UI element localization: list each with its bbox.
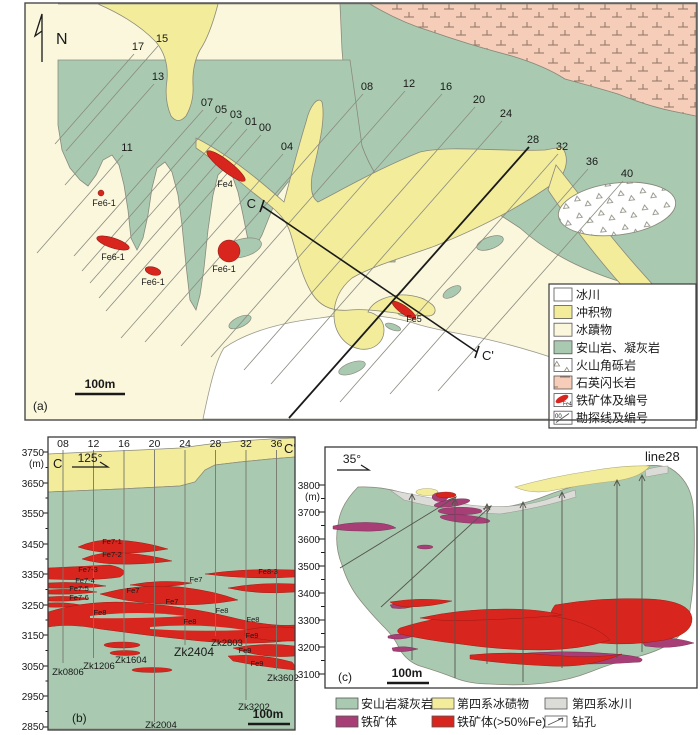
line-label: 12 bbox=[403, 78, 415, 90]
c-elev-label: 3400 bbox=[298, 589, 321, 600]
line-label: 00 bbox=[259, 122, 271, 134]
legend-a-item-diorite: 石英闪长岩 bbox=[554, 375, 636, 390]
line-label: 03 bbox=[230, 109, 242, 121]
scalebar-a-label: 100m bbox=[85, 377, 116, 391]
b-ore-label: Fe8 bbox=[184, 617, 197, 626]
borehole-label: Zk2004 bbox=[145, 720, 177, 731]
legend-label: 冰蹟物 bbox=[576, 323, 612, 337]
ore-label: Fe5 bbox=[406, 314, 422, 324]
panel-b-tag: (b) bbox=[72, 711, 87, 725]
b-line-label: 32 bbox=[240, 438, 252, 450]
b-ore-label: Fe7 bbox=[127, 586, 140, 595]
legend-label: 钻孔 bbox=[572, 714, 596, 729]
c-title: line28 bbox=[645, 449, 680, 464]
legend-label: 火山角砾岩 bbox=[576, 357, 636, 372]
section-label-c: C bbox=[247, 196, 256, 211]
b-elev-label: 2850 bbox=[22, 722, 45, 733]
b-ore-label: Fe9 bbox=[246, 631, 259, 640]
line-label: 32 bbox=[556, 141, 568, 153]
legend2-item-andesite: 安山岩凝灰岩 bbox=[336, 696, 433, 711]
legend-label: 第四系冰碛物 bbox=[457, 697, 529, 711]
b-line-label: 08 bbox=[57, 438, 69, 450]
legend-label: 第四系冰川 bbox=[572, 697, 632, 711]
line-label: 24 bbox=[500, 108, 512, 120]
b-ore-label: Fe7-5 bbox=[69, 584, 89, 593]
legend-label: 安山岩、凝灰岩 bbox=[576, 340, 660, 355]
b-elev-label: 3150 bbox=[22, 631, 45, 642]
line-label: 11 bbox=[121, 142, 132, 154]
panel-c-tag: (c) bbox=[338, 670, 352, 684]
b-elev-unit: (m) bbox=[29, 459, 44, 470]
figure-svg: 17 15 13 11 07 05 03 01 00 04 08 12 16 2… bbox=[0, 0, 700, 735]
b-line-label: 36 bbox=[271, 438, 283, 450]
line-label: 01 bbox=[245, 116, 257, 128]
b-label-c: C bbox=[53, 456, 62, 471]
panel-b-section: 08 12 16 20 24 28 32 36 3750 (m) 3650 35… bbox=[22, 437, 299, 733]
legend-a-item-ore: Fe4 铁矿体及编号 bbox=[554, 393, 648, 408]
ore-fe6-1-d bbox=[218, 240, 240, 262]
b-elev-label: 3050 bbox=[22, 662, 45, 673]
b-line-label: 20 bbox=[149, 438, 161, 450]
b-elev-label: 3750 bbox=[22, 448, 45, 459]
legend-a-item-alluvium: 冲积物 bbox=[554, 305, 612, 320]
line-label: 28 bbox=[527, 134, 539, 146]
borehole-label: Zk1604 bbox=[115, 655, 147, 666]
legend-a: 冰川 冲积物 冰蹟物 安山岩、凝灰岩 火山角砾岩 石英闪长岩 bbox=[549, 284, 696, 428]
section-c-axis: 3800 (m) 3700 3600 3500 3400 3300 3200 3… bbox=[298, 481, 325, 681]
borehole-label: Zk2404 bbox=[174, 645, 214, 659]
borehole-label: Zk0806 bbox=[52, 667, 84, 678]
b-axis-ticks bbox=[43, 452, 48, 727]
legend-a-item-moraine: 冰蹟物 bbox=[554, 323, 612, 337]
line-label: 08 bbox=[361, 81, 373, 93]
legend-label: 冲积物 bbox=[576, 305, 612, 320]
c-elev-label: 3800 bbox=[298, 481, 321, 492]
legend2-item-ore: 铁矿体 bbox=[336, 715, 397, 729]
section-label-c-prime: C' bbox=[482, 348, 494, 363]
legend-a-item-andesite: 安山岩、凝灰岩 bbox=[554, 340, 660, 355]
c-elev-unit: (m) bbox=[305, 492, 320, 503]
b-line-label: 24 bbox=[179, 438, 191, 450]
c-azimuth-label: 35° bbox=[343, 452, 361, 466]
b-ore-label: Fe7 bbox=[190, 575, 203, 584]
ore-label: Fe6-1 bbox=[212, 264, 236, 274]
legend-label: 勘探线及编号 bbox=[576, 410, 648, 425]
b-ore-label: Fe7 bbox=[166, 597, 179, 606]
line-label: 40 bbox=[621, 168, 633, 180]
b-elev-label: 2950 bbox=[22, 692, 45, 703]
b-ore-label: Fe9 bbox=[251, 659, 264, 668]
b-line-label: 12 bbox=[88, 438, 100, 450]
legend-label: 铁矿体及编号 bbox=[576, 393, 648, 408]
b-ore-label: Fe7-2 bbox=[102, 550, 122, 559]
b-ore-label: Fe7-1 bbox=[102, 537, 122, 546]
b-ore-label: Fe8 bbox=[247, 615, 260, 624]
b-label-c-prime: C' bbox=[284, 441, 296, 456]
line-label: 04 bbox=[281, 141, 293, 153]
legend-line-tag: 00 bbox=[555, 414, 562, 420]
borehole-label: Zk1206 bbox=[83, 661, 115, 672]
legend-label: 安山岩凝灰岩 bbox=[361, 696, 433, 711]
c-elev-label: 3500 bbox=[298, 562, 321, 573]
legend-label: 铁矿体(>50%Fe) bbox=[457, 715, 546, 729]
borehole-label: Zk3602 bbox=[267, 673, 299, 684]
b-ore-label: Fe8-3 bbox=[258, 567, 278, 576]
legend2-item-rich-ore: 铁矿体(>50%Fe) bbox=[432, 715, 546, 729]
line-label: 07 bbox=[201, 97, 213, 109]
c-elev-label: 3100 bbox=[298, 670, 321, 681]
b-elev-label: 3450 bbox=[22, 540, 45, 551]
ore-label: Fe4 bbox=[217, 179, 233, 189]
legend-a-item-glacier: 冰川 bbox=[554, 288, 600, 302]
section-b-axis: 3750 (m) 3650 3550 3450 3350 3250 3150 3… bbox=[22, 448, 48, 733]
b-line-label: 16 bbox=[118, 438, 130, 450]
legend2-item-moraine: 第四系冰碛物 bbox=[432, 697, 529, 711]
b-line-label: 28 bbox=[210, 438, 222, 450]
line-label: 16 bbox=[440, 81, 452, 93]
b-ore-label: Fe7-3 bbox=[78, 565, 98, 574]
panel-a-map: 17 15 13 11 07 05 03 01 00 04 08 12 16 2… bbox=[25, 3, 697, 428]
ore-fe6-1-a bbox=[98, 190, 104, 196]
ore-label: Fe6-1 bbox=[92, 198, 116, 208]
line-label: 20 bbox=[473, 94, 485, 106]
scalebar-c-label: 100m bbox=[392, 666, 423, 680]
borehole-label: Zk2803 bbox=[211, 638, 243, 649]
b-ore-label: Fe7-6 bbox=[69, 593, 89, 602]
legend-a-item-breccia: 火山角砾岩 bbox=[554, 357, 636, 372]
ore-label: Fe6-1 bbox=[101, 252, 125, 262]
ore-label: Fe6-1 bbox=[141, 277, 165, 287]
bottom-legend: 安山岩凝灰岩 第四系冰碛物 第四系冰川 铁矿体 铁矿体(>50%Fe) 钻孔 bbox=[336, 696, 632, 729]
line-label: 13 bbox=[152, 71, 164, 83]
b-ore-label: Fe8 bbox=[216, 606, 229, 615]
c-elev-label: 3200 bbox=[298, 643, 321, 654]
legend2-item-drillhole: 钻孔 bbox=[545, 714, 596, 729]
b-elev-label: 3350 bbox=[22, 570, 45, 581]
c-elev-label: 3300 bbox=[298, 616, 321, 627]
line-label: 36 bbox=[586, 156, 598, 168]
b-azimuth-label: 125° bbox=[78, 451, 103, 465]
line-label: 05 bbox=[215, 104, 227, 116]
line-label: 17 bbox=[132, 41, 144, 53]
legend-ore-tag: Fe4 bbox=[563, 402, 572, 408]
b-elev-label: 3550 bbox=[22, 509, 45, 520]
north-label: N bbox=[56, 31, 68, 48]
panel-c-section: 3800 (m) 3700 3600 3500 3400 3300 3200 3… bbox=[298, 447, 697, 688]
b-elev-label: 3250 bbox=[22, 601, 45, 612]
legend2-item-glacier: 第四系冰川 bbox=[545, 697, 632, 711]
legend-a-item-expline: 00 勘探线及编号 bbox=[554, 410, 648, 425]
panel-a-tag: (a) bbox=[33, 399, 48, 413]
figure: 17 15 13 11 07 05 03 01 00 04 08 12 16 2… bbox=[0, 0, 700, 735]
line-label: 15 bbox=[156, 33, 168, 45]
legend-label: 铁矿体 bbox=[361, 715, 397, 729]
c-elev-label: 3600 bbox=[298, 535, 321, 546]
c-elev-label: 3700 bbox=[298, 508, 321, 519]
legend-label: 石英闪长岩 bbox=[576, 375, 636, 390]
b-elev-label: 3650 bbox=[22, 479, 45, 490]
legend-label: 冰川 bbox=[576, 288, 600, 302]
scalebar-b-label: 100m bbox=[253, 707, 284, 721]
b-ore-label: Fe8 bbox=[94, 608, 107, 617]
